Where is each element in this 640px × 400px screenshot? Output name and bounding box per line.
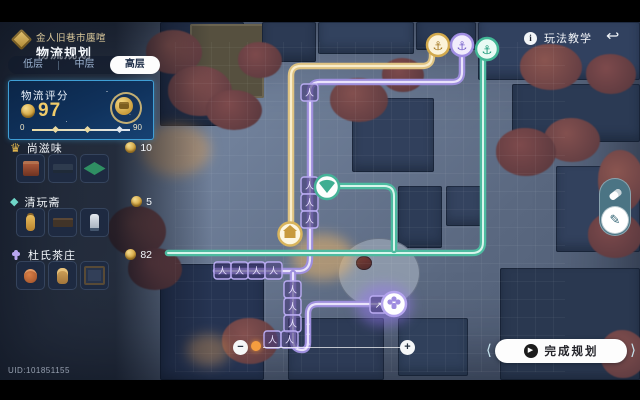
dock-anchor-purple[interactable]: ⚓ <box>451 34 473 56</box>
pen-button[interactable]: ✎ <box>602 207 628 233</box>
svg-text:人: 人 <box>305 198 314 208</box>
svg-text:人: 人 <box>268 335 277 345</box>
track-marker-icon <box>52 126 59 133</box>
gem-icon: ◆ <box>10 196 18 208</box>
path-tile[interactable]: 人 <box>284 298 301 315</box>
svg-text:⚓: ⚓ <box>433 39 444 53</box>
letterbox-top <box>0 0 640 22</box>
svg-text:人: 人 <box>305 181 314 191</box>
route-purple-upper <box>216 54 462 271</box>
coin-icon <box>125 142 136 153</box>
event-title: 金人旧巷市廛喧 <box>36 30 176 44</box>
tab-label: 低层 <box>23 59 43 70</box>
svg-text:人: 人 <box>288 285 297 295</box>
scale-max: 90 <box>133 123 142 132</box>
zoom-slider-track[interactable] <box>263 347 402 348</box>
svg-text:人: 人 <box>269 266 278 276</box>
svg-text:人: 人 <box>285 335 294 345</box>
item-orange-pot[interactable] <box>16 261 45 290</box>
shop-section-header: 杜氏茶庄 82 <box>10 247 152 262</box>
item-white-statue[interactable] <box>80 208 109 237</box>
scale-min: 0 <box>20 123 24 132</box>
coin-icon <box>131 196 142 207</box>
item-wood-bench[interactable] <box>48 154 77 183</box>
eraser-button[interactable] <box>603 182 627 206</box>
svg-text:⚓: ⚓ <box>457 39 468 53</box>
uid-text: UID:101851155 <box>8 366 70 375</box>
score-value: 97 <box>38 100 61 122</box>
eraser-icon <box>608 188 623 202</box>
dock-anchor-green[interactable]: ⚓ <box>476 38 498 60</box>
layer-tabs: 低层 中层 高层 <box>8 56 160 74</box>
flow-chevron-icon: ∧ <box>305 320 310 327</box>
shop-section-header: ◆ 清玩斋 5 <box>10 194 152 209</box>
shop-count: 5 <box>146 196 152 208</box>
svg-text:人: 人 <box>218 266 227 276</box>
route-green-main-core <box>168 60 483 253</box>
path-tile[interactable]: 人 <box>284 315 301 332</box>
reward-chest-icon[interactable] <box>110 92 142 124</box>
shop-count: 10 <box>140 142 152 154</box>
route-green-main <box>168 60 483 253</box>
path-tile[interactable]: 人 <box>248 262 265 279</box>
svg-text:人: 人 <box>288 302 297 312</box>
back-icon[interactable]: ↩ <box>606 27 619 45</box>
dock-anchor-yellow[interactable]: ⚓ <box>427 34 449 56</box>
shop-node-purple[interactable] <box>382 292 406 316</box>
shop-node-teal[interactable] <box>315 175 339 199</box>
svg-text:人: 人 <box>235 266 244 276</box>
flow-chevron-icon: ∧ <box>305 330 310 337</box>
hat-icon: ♛ <box>10 142 21 154</box>
zoom-out-button[interactable]: − <box>233 340 248 355</box>
zoom-slider-handle[interactable] <box>251 341 261 351</box>
wing-right-icon: ⟩ <box>630 338 636 364</box>
svg-text:人: 人 <box>252 266 261 276</box>
edit-tool-toggle: ✎ <box>599 178 631 236</box>
info-icon: i <box>524 32 537 45</box>
svg-text:人: 人 <box>305 215 314 225</box>
svg-text:人: 人 <box>305 88 314 98</box>
path-tile[interactable]: 人 <box>284 281 301 298</box>
tab-middle-layer[interactable]: 中层 <box>59 56 109 74</box>
track-marker-icon <box>116 126 123 133</box>
path-tile[interactable]: 人 <box>265 262 282 279</box>
shop-item-row <box>16 261 109 290</box>
flow-chevron-icon: ∧ <box>305 340 310 347</box>
tab-label: 高层 <box>125 59 145 70</box>
track-marker-icon <box>84 126 91 133</box>
path-tile[interactable]: 人 <box>264 331 281 348</box>
game-screen: 人 人 人 人 人 人 人 人 人 人 人 人 人 ↗ ∧ ∧ ∧ <box>0 0 640 400</box>
path-tile[interactable]: 人 <box>281 331 298 348</box>
svg-text:人: 人 <box>288 319 297 329</box>
path-tile[interactable]: 人 <box>214 262 231 279</box>
item-gold-lantern[interactable] <box>16 208 45 237</box>
hand-icon <box>10 249 22 261</box>
route-green-branch <box>334 186 394 250</box>
path-tile[interactable]: 人 <box>301 84 318 101</box>
shop-count: 82 <box>140 249 152 261</box>
shop-section-header: ♛ 尚滋味 10 <box>10 140 152 155</box>
route-purple-upper-core <box>216 54 462 271</box>
wing-left-icon: ⟨ <box>486 338 492 364</box>
logistics-score-card: 物流评分 97 0 90 <box>8 80 154 140</box>
path-tile[interactable]: 人 <box>231 262 248 279</box>
svg-text:⚓: ⚓ <box>482 43 493 57</box>
coin-icon <box>125 249 136 260</box>
path-tile[interactable]: 人 <box>301 211 318 228</box>
path-tile[interactable]: 人 <box>301 194 318 211</box>
finish-planning-button[interactable]: ⟨ ▶ 完成规划 ⟩ <box>486 337 636 365</box>
pen-icon: ✎ <box>602 207 628 233</box>
tutorial-label: 玩法教学 <box>544 30 592 46</box>
tab-upper-layer[interactable]: 高层 <box>110 56 160 74</box>
item-cabinet[interactable] <box>80 261 109 290</box>
tutorial-button[interactable]: i 玩法教学 <box>524 30 592 46</box>
zoom-in-button[interactable]: + <box>400 340 415 355</box>
item-green-mat[interactable] <box>80 154 109 183</box>
shop-item-row <box>16 154 109 183</box>
item-tall-urn[interactable] <box>48 261 77 290</box>
play-icon: ▶ <box>524 344 538 358</box>
item-red-crate[interactable] <box>16 154 45 183</box>
shop-item-row <box>16 208 109 237</box>
finish-label: 完成规划 <box>545 343 599 359</box>
shop-node-yellow[interactable] <box>279 223 302 246</box>
coin-icon <box>21 104 35 118</box>
tab-label: 中层 <box>74 59 94 70</box>
route-green-branch-core <box>334 186 394 250</box>
letterbox-bottom <box>0 380 640 400</box>
item-dark-table[interactable] <box>48 208 77 237</box>
tab-lower-layer[interactable]: 低层 <box>8 56 58 74</box>
